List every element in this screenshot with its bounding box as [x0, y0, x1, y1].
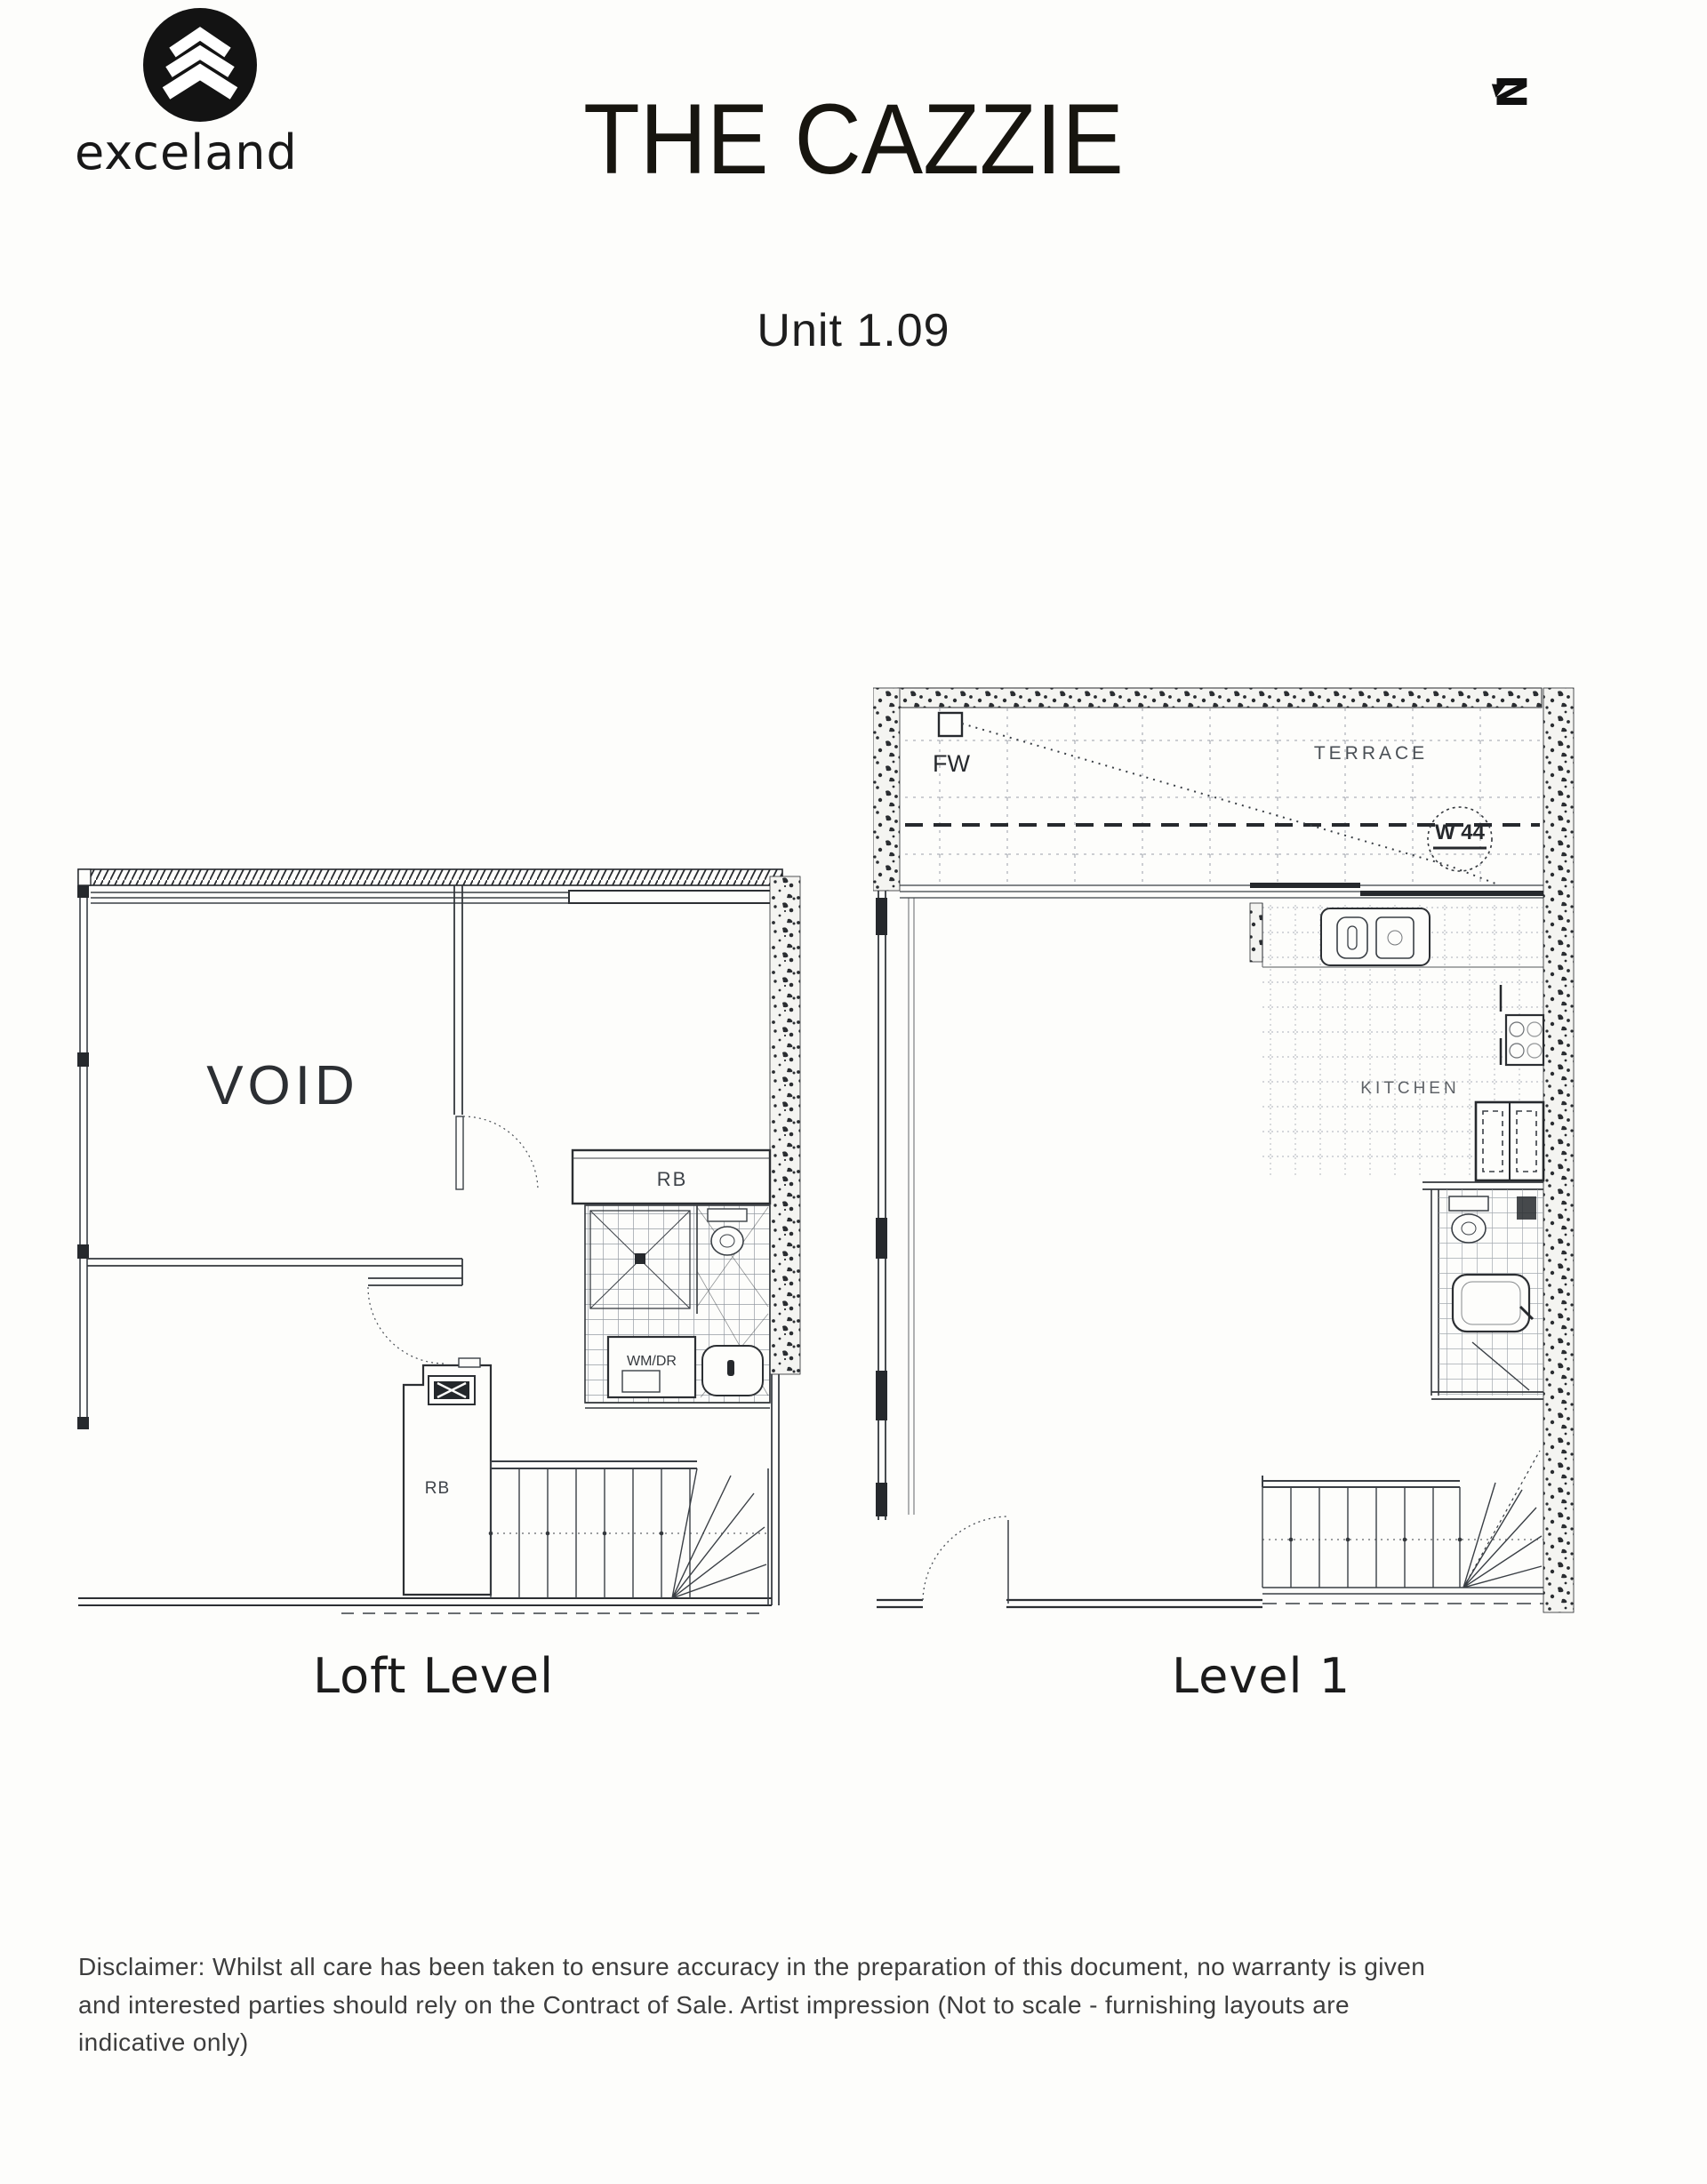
sliding-door-panel [1360, 891, 1543, 896]
terrace-label: TERRACE [1314, 743, 1428, 764]
loft-level-floorplan: VOID RB WM/DR [75, 852, 807, 1620]
fridge [1476, 1102, 1543, 1180]
washer-dryer-label: WM/DR [627, 1354, 677, 1369]
disclaimer-line: and interested parties should rely on th… [78, 1987, 1572, 2025]
void-room-label: VOID [206, 1055, 359, 1116]
page-title: THE CAZZIE [60, 82, 1647, 196]
level1-bathroom [1422, 1182, 1543, 1399]
disclaimer-text: Disclaimer: Whilst all care has been tak… [78, 1948, 1572, 2062]
level1-stairs [1262, 1451, 1543, 1594]
toilet [1449, 1196, 1488, 1243]
entry-door-arc [923, 1516, 1009, 1600]
loft-door-swing-arc [463, 1116, 538, 1191]
sliding-door-panel [1250, 883, 1360, 888]
north-arrow-icon: N [1483, 62, 1547, 126]
kitchen: KITCHEN [1250, 901, 1543, 1180]
window-tag-label: W 44 [1435, 820, 1486, 844]
robe-label: RB [657, 1168, 688, 1190]
loft-bedroom-door-arc [368, 1287, 445, 1364]
robe2-label: RB [425, 1479, 450, 1498]
loft-robe-2: RB [404, 1358, 491, 1595]
floor-waste-label: FW [933, 750, 970, 777]
loft-bathroom: WM/DR [585, 1205, 770, 1408]
level1-caption: Level 1 [1172, 1648, 1350, 1704]
level1-floorplan: FW TERRACE W 44 [873, 684, 1577, 1616]
loft-robe: RB [573, 1150, 770, 1204]
disclaimer-line: Disclaimer: Whilst all care has been tak… [78, 1948, 1572, 1987]
floor-waste [939, 713, 962, 736]
loft-stairs [489, 1461, 768, 1605]
floorplan-document-page: exceland THE CAZZIE Unit 1.09 N [0, 0, 1707, 2184]
washer-dryer: WM/DR [608, 1337, 695, 1397]
loft-door-leaf [456, 1116, 463, 1189]
niche [1517, 1196, 1536, 1220]
loft-void-room: VOID [87, 885, 538, 1364]
disclaimer-line: indicative only) [78, 2024, 1572, 2062]
vanity-basin [702, 1346, 763, 1396]
cooktop [1506, 1015, 1543, 1065]
kitchen-label: KITCHEN [1360, 1079, 1459, 1098]
loft-level-caption: Loft Level [313, 1648, 554, 1704]
basin [1453, 1275, 1533, 1332]
unit-label: Unit 1.09 [0, 304, 1707, 357]
terrace: FW TERRACE W 44 [900, 708, 1543, 898]
kitchen-sink [1321, 908, 1430, 965]
winder-treads [1463, 1483, 1542, 1588]
